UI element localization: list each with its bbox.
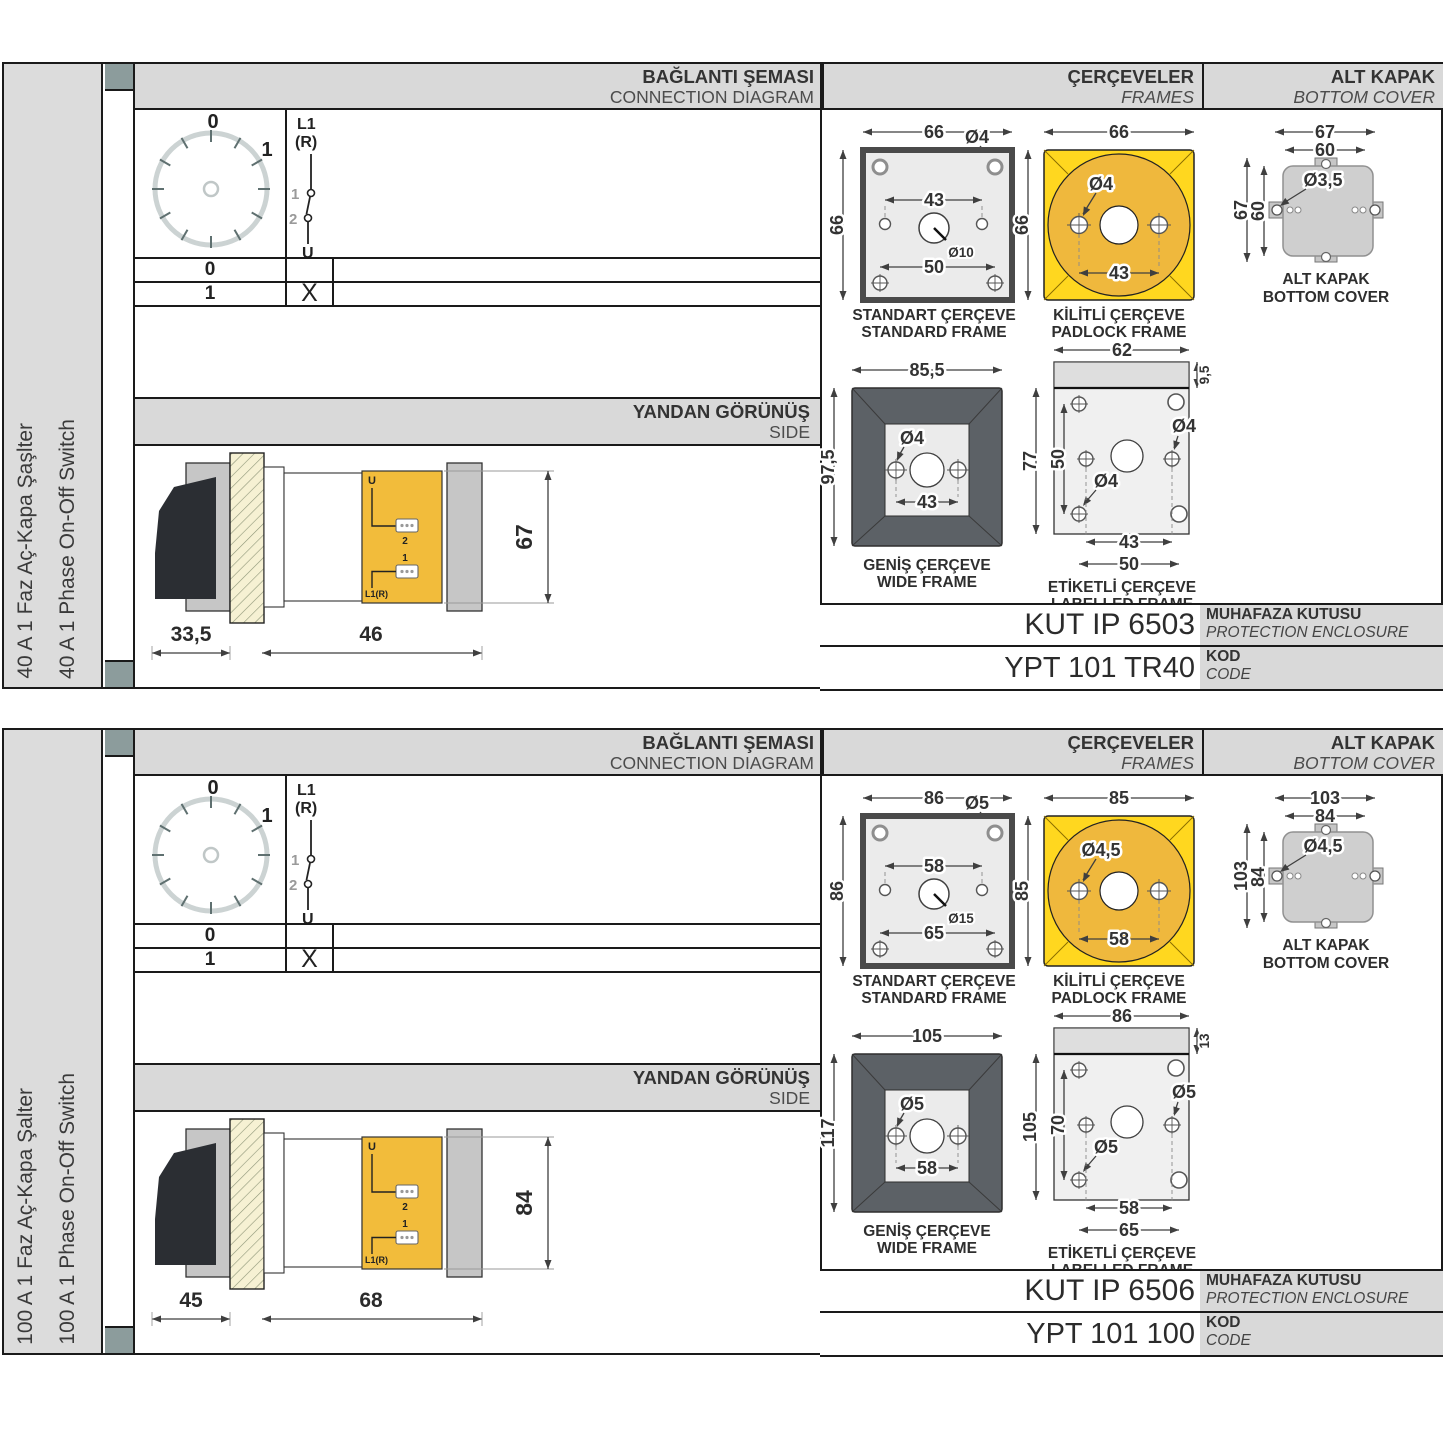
dim-std-width: 66 [924, 122, 944, 142]
caption-cover-tr: ALT KAPAK [1282, 271, 1370, 288]
table-line [135, 305, 822, 307]
dim-cover-inner-h: 60 [1248, 201, 1268, 221]
dim-lab-span2: 65 [1119, 1220, 1139, 1240]
switch-body [284, 473, 362, 601]
catalog-page: 40 A 1 Faz Aç-Kapa Şaşlter 40 A 1 Phase … [0, 0, 1445, 1442]
product-code-cell: YPT 101 TR40 [820, 645, 1200, 691]
caption-standard-en: STANDARD FRAME [861, 990, 1006, 1007]
position-row-1: 1 [135, 949, 285, 971]
dim-lab-hole-right: Ø5 [1172, 1082, 1196, 1102]
dial-position-1: 1 [261, 805, 272, 827]
dim-lab-hole-left: Ø5 [1094, 1137, 1118, 1157]
dim-lab-width: 62 [1112, 340, 1132, 360]
caption-padlock-tr: KİLİTLİ ÇERÇEVE [1053, 307, 1185, 324]
code-label-cell: KOD CODE [1200, 645, 1443, 691]
dim-std-hole: Ø5 [965, 793, 989, 813]
phase-label-alt: (R) [295, 134, 317, 151]
switch-body [284, 1139, 362, 1267]
caption-standard-tr: STANDART ÇERÇEVE [852, 307, 1015, 324]
dim-std-height: 66 [827, 215, 847, 235]
side-view-band: YANDAN GÖRÜNÜŞ SIDE [135, 397, 820, 446]
dim-pad-height: 85 [1012, 881, 1032, 901]
index-marker-top [105, 64, 133, 91]
position-row-0: 0 [135, 925, 285, 947]
dim-wide-width: 85,5 [909, 360, 944, 380]
dim-cover-inner-w: 60 [1315, 140, 1335, 160]
padlock-frame-drawing: 85 Ø4,5 85 58 KİLİTLİ ÇERÇEVE PADLOCK FR… [1022, 790, 1212, 1005]
caption-cover-tr: ALT KAPAK [1282, 937, 1370, 954]
phase-label: L1 [297, 782, 316, 799]
enclosure-label-cell: MUHAFAZA KUTUSU PROTECTION ENCLOSURE [1200, 603, 1443, 647]
caption-wide-en: WIDE FRAME [877, 574, 977, 591]
index-marker-top [105, 730, 133, 757]
dim-pad-span: 43 [1109, 263, 1129, 283]
standard-frame-drawing: 86 Ø5 86 58 Ø15 65 STANDART ÇERÇEVE STAN… [830, 790, 1030, 1005]
dim-side-front: 46 [359, 623, 382, 646]
caption-padlock-tr: KİLİTLİ ÇERÇEVE [1053, 973, 1185, 990]
dim-side-height: 67 [511, 524, 537, 550]
column-headers: BAĞLANTI ŞEMASI CONNECTION DIAGRAM ÇERÇE… [135, 730, 1443, 776]
position-row-0: 0 [135, 259, 285, 281]
dim-wide-width: 105 [912, 1026, 942, 1046]
position-row-1: 1 [135, 283, 285, 305]
enclosure-code: KUT IP 6506 [820, 1271, 1200, 1311]
header-cover: ALT KAPAK BOTTOM COVER [1202, 730, 1443, 774]
load-label: U [302, 245, 314, 262]
dim-cover-inner-w: 84 [1315, 806, 1335, 826]
dial-position-0: 0 [207, 777, 218, 799]
dim-lab-hole-right: Ø4 [1172, 416, 1196, 436]
dim-std-center-hole: Ø15 [948, 911, 974, 926]
switch-symbol-drawing: L1 (R) 1 2 U [287, 110, 387, 259]
dim-std-hole: Ø4 [965, 127, 989, 147]
dim-cover-outer-w: 103 [1310, 788, 1340, 808]
terminal-u-label: U [368, 1141, 376, 1153]
contact-closed-mark: X [285, 279, 334, 308]
table-line [135, 971, 822, 973]
terminal-u-label: U [368, 475, 376, 487]
diagram-cell-divider [285, 110, 287, 307]
header-connection: BAĞLANTI ŞEMASI CONNECTION DIAGRAM [135, 730, 822, 774]
terminal-1-label: 1 [402, 553, 408, 564]
side-view-drawing: U 2 1 L1(R) 84 45 68 [134, 1115, 694, 1355]
contact-1-label: 1 [291, 852, 299, 869]
mounting-panel-hatch [230, 453, 264, 623]
terminal-2-label: 2 [402, 1202, 408, 1213]
contact-1-label: 1 [291, 186, 299, 203]
switch-handle [155, 1143, 216, 1265]
dim-lab-hole-left: Ø4 [1094, 471, 1118, 491]
dim-wide-height: 117 [818, 1118, 838, 1147]
enclosure-code-cell: KUT IP 6503 [820, 603, 1200, 647]
dim-pad-width: 66 [1109, 122, 1129, 142]
padlock-frame-drawing: 66 Ø4 66 43 KİLİTLİ ÇERÇEVE PADLOCK FRAM… [1022, 124, 1212, 339]
dim-std-bottom-span: 50 [924, 257, 944, 277]
dim-std-height: 86 [827, 881, 847, 901]
side-view-band: YANDAN GÖRÜNÜŞ SIDE [135, 1063, 820, 1112]
dim-wide-hole: Ø4 [900, 428, 924, 448]
header-cover: ALT KAPAK BOTTOM COVER [1202, 64, 1443, 108]
bottom-cover-drawing: 103 84 Ø4,5 103 84 ALT KAPAK BOTTOM COVE… [1226, 790, 1445, 980]
dim-lab-strip: 13 [1197, 1033, 1212, 1049]
caption-standard-en: STANDARD FRAME [861, 324, 1006, 341]
dim-wide-height: 97,5 [818, 449, 838, 484]
dim-wide-span: 58 [917, 1158, 937, 1178]
dim-std-center-hole: Ø10 [948, 245, 974, 260]
index-bar [105, 64, 135, 687]
dial-position-1: 1 [261, 139, 272, 161]
dim-std-bottom-span: 65 [924, 923, 944, 943]
mounting-panel-hatch [230, 1119, 264, 1289]
terminal-l1r-label: L1(R) [365, 589, 388, 599]
dim-lab-height: 77 [1020, 451, 1040, 471]
phase-label-alt: (R) [295, 800, 317, 817]
caption-padlock-en: PADLOCK FRAME [1052, 990, 1187, 1007]
phase-label: L1 [297, 116, 316, 133]
contact-2-label: 2 [289, 877, 297, 894]
caption-labelled-tr: ETİKETLİ ÇERÇEVE [1048, 579, 1196, 596]
dim-cover-hole: Ø3,5 [1303, 170, 1342, 190]
dim-std-span: 58 [924, 856, 944, 876]
product-title-tr: 40 A 1 Faz Aç-Kapa Şaşlter [14, 423, 38, 679]
spacer [264, 467, 284, 607]
terminal-1-label: 1 [402, 1219, 408, 1230]
dim-side-height: 84 [511, 1190, 537, 1216]
caption-wide-tr: GENİŞ ÇERÇEVE [863, 1223, 990, 1240]
dim-lab-inner: 50 [1048, 449, 1068, 469]
dim-lab-width: 86 [1112, 1006, 1132, 1026]
dim-std-width: 86 [924, 788, 944, 808]
product-title-tr: 100 A 1 Faz Aç-Kapa Şalter [14, 1088, 38, 1345]
dim-side-rear: 33,5 [171, 623, 212, 646]
wide-frame-drawing: 105 117 Ø5 58 GENİŞ ÇERÇEVE WIDE FRAME [822, 1020, 1032, 1265]
dim-wide-span: 43 [917, 492, 937, 512]
contact-2-label: 2 [289, 211, 297, 228]
product-section-100a: 100 A 1 Faz Aç-Kapa Şalter 100 A 1 Phase… [2, 728, 1443, 1355]
wide-frame-drawing: 85,5 97,5 Ø4 43 GENİŞ ÇERÇEVE WIDE FRAME [822, 354, 1032, 599]
dim-pad-span: 58 [1109, 929, 1129, 949]
labelled-frame-drawing: 86 13 105 70 Ø5 Ø5 58 65 ETİKETLİ ÇERÇEV… [1026, 1010, 1218, 1276]
rear-plate [447, 463, 482, 611]
switch-symbol-drawing: L1 (R) 1 2 U [287, 776, 387, 925]
dim-lab-inner: 70 [1048, 1115, 1068, 1135]
caption-labelled-tr: ETİKETLİ ÇERÇEVE [1048, 1245, 1196, 1262]
product-code: YPT 101 100 [820, 1313, 1200, 1355]
product-title-en: 100 A 1 Phase On-Off Switch [56, 1073, 80, 1345]
enclosure-code: KUT IP 6503 [820, 605, 1200, 645]
dim-std-span: 43 [924, 190, 944, 210]
dim-cover-hole: Ø4,5 [1303, 836, 1342, 856]
terminal-2-label: 2 [402, 536, 408, 547]
contact-closed-mark: X [285, 945, 334, 974]
dim-cover-inner-h: 84 [1248, 867, 1268, 887]
dim-side-rear: 45 [179, 1289, 203, 1312]
header-connection: BAĞLANTI ŞEMASI CONNECTION DIAGRAM [135, 64, 822, 108]
dim-lab-strip: 9,5 [1197, 365, 1212, 384]
dim-pad-height: 66 [1012, 215, 1032, 235]
spacer [264, 1133, 284, 1273]
terminal-l1r-label: L1(R) [365, 1255, 388, 1265]
dim-lab-span: 58 [1119, 1198, 1139, 1218]
index-marker-bottom [105, 1326, 133, 1353]
dim-pad-width: 85 [1109, 788, 1129, 808]
dim-lab-span: 43 [1119, 532, 1139, 552]
dim-pad-hole: Ø4,5 [1081, 840, 1120, 860]
load-label: U [302, 911, 314, 928]
labelled-frame-drawing: 62 9,5 77 50 Ø4 Ø4 43 50 ETİKETLİ ÇERÇEV… [1026, 344, 1218, 610]
dim-side-front: 68 [359, 1289, 383, 1312]
caption-cover-en: BOTTOM COVER [1263, 289, 1389, 306]
standard-frame-drawing: 66 Ø4 66 43 Ø10 50 STANDART ÇERÇEVE STAN… [830, 124, 1030, 339]
caption-wide-en: WIDE FRAME [877, 1240, 977, 1257]
bottom-cover-drawing: 67 60 Ø3,5 67 60 ALT KAPAK BOTTOM COVER [1226, 124, 1445, 314]
caption-wide-tr: GENİŞ ÇERÇEVE [863, 557, 990, 574]
column-headers: BAĞLANTI ŞEMASI CONNECTION DIAGRAM ÇERÇE… [135, 64, 1443, 110]
dim-lab-height: 105 [1020, 1112, 1040, 1142]
enclosure-label-cell: MUHAFAZA KUTUSU PROTECTION ENCLOSURE [1200, 1269, 1443, 1313]
rear-plate [447, 1129, 482, 1277]
dim-wide-hole: Ø5 [900, 1094, 924, 1114]
header-frames: ÇERÇEVELER FRAMES [822, 64, 1202, 108]
product-code-cell: YPT 101 100 [820, 1311, 1200, 1357]
caption-cover-en: BOTTOM COVER [1263, 955, 1389, 972]
product-code: YPT 101 TR40 [820, 647, 1200, 689]
diagram-cell-divider [285, 776, 287, 973]
product-title-en: 40 A 1 Phase On-Off Switch [56, 419, 80, 679]
code-label-cell: KOD CODE [1200, 1311, 1443, 1357]
index-marker-bottom [105, 660, 133, 687]
product-section-40a: 40 A 1 Faz Aç-Kapa Şaşlter 40 A 1 Phase … [2, 62, 1443, 689]
enclosure-code-cell: KUT IP 6506 [820, 1269, 1200, 1313]
section-title-band: 40 A 1 Faz Aç-Kapa Şaşlter 40 A 1 Phase … [4, 64, 103, 687]
caption-padlock-en: PADLOCK FRAME [1052, 324, 1187, 341]
switch-dial-drawing: 0 1 [139, 780, 289, 932]
dim-lab-span2: 50 [1119, 554, 1139, 574]
caption-standard-tr: STANDART ÇERÇEVE [852, 973, 1015, 990]
switch-handle [155, 477, 216, 599]
header-frames: ÇERÇEVELER FRAMES [822, 730, 1202, 774]
side-view-drawing: U 2 1 L1(R) 67 33,5 46 [134, 449, 694, 689]
index-bar [105, 730, 135, 1353]
section-title-band: 100 A 1 Faz Aç-Kapa Şalter 100 A 1 Phase… [4, 730, 103, 1353]
dim-cover-outer-w: 67 [1315, 122, 1335, 142]
dim-pad-hole: Ø4 [1089, 174, 1113, 194]
switch-dial-drawing: 0 1 [139, 114, 289, 266]
dial-position-0: 0 [207, 111, 218, 133]
